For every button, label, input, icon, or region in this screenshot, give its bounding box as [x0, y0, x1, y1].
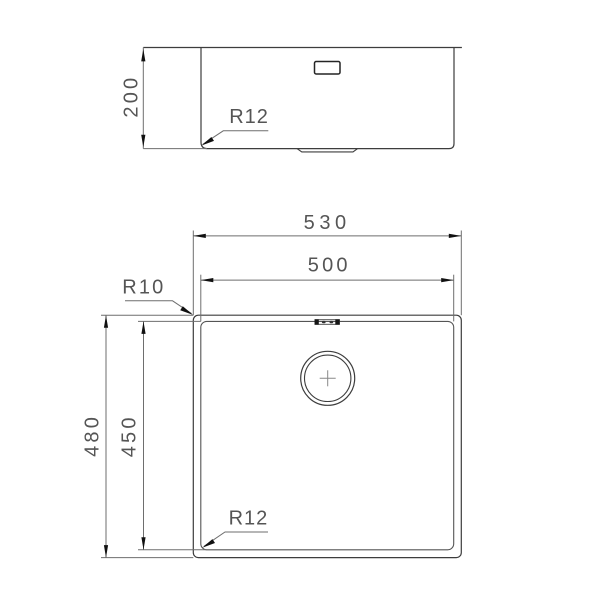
svg-text:480: 480 — [81, 414, 103, 457]
svg-text:500: 500 — [308, 254, 351, 276]
svg-text:R10: R10 — [122, 277, 165, 299]
svg-text:R12: R12 — [229, 106, 269, 128]
svg-text:R12: R12 — [229, 508, 269, 530]
svg-text:200: 200 — [120, 75, 142, 118]
svg-text:450: 450 — [119, 414, 141, 457]
svg-text:530: 530 — [304, 212, 351, 234]
